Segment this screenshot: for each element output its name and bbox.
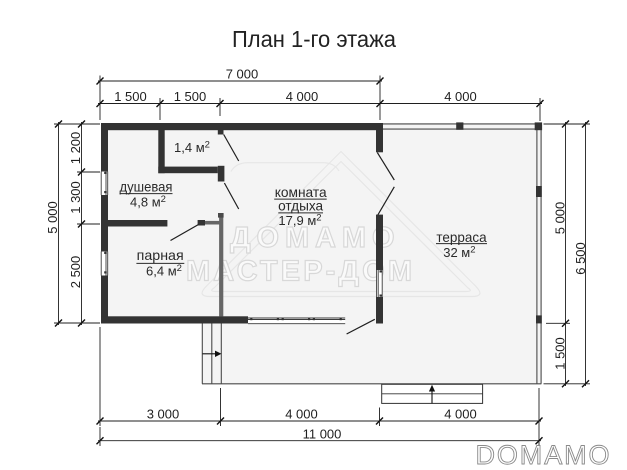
svg-text:парная: парная (137, 247, 184, 263)
svg-text:1 500: 1 500 (553, 337, 568, 370)
svg-text:6,4 м2: 6,4 м2 (146, 263, 182, 279)
svg-text:1,4 м2: 1,4 м2 (174, 140, 210, 156)
svg-text:7 000: 7 000 (226, 66, 259, 81)
svg-text:5 000: 5 000 (553, 202, 568, 235)
svg-text:3 000: 3 000 (147, 406, 180, 421)
svg-text:2 500: 2 500 (68, 256, 83, 289)
svg-text:6 500: 6 500 (573, 242, 588, 275)
svg-text:4 000: 4 000 (286, 89, 319, 104)
svg-text:5 000: 5 000 (45, 201, 60, 234)
svg-text:17,9 м2: 17,9 м2 (278, 212, 321, 228)
svg-text:4 000: 4 000 (444, 89, 477, 104)
svg-text:1 500: 1 500 (114, 89, 147, 104)
svg-text:11 000: 11 000 (303, 426, 342, 441)
svg-text:душевая: душевая (120, 178, 173, 194)
svg-text:терраса: терраса (436, 229, 487, 245)
svg-text:1 200: 1 200 (68, 132, 83, 165)
svg-text:4 000: 4 000 (285, 406, 318, 421)
svg-text:4,8 м2: 4,8 м2 (130, 194, 166, 210)
svg-text:План 1-го этажа: План 1-го этажа (232, 26, 396, 52)
svg-text:4 000: 4 000 (444, 406, 477, 421)
svg-text:1 500: 1 500 (174, 89, 207, 104)
svg-text:1 300: 1 300 (68, 181, 83, 214)
svg-text:отдыха: отдыха (278, 198, 323, 214)
